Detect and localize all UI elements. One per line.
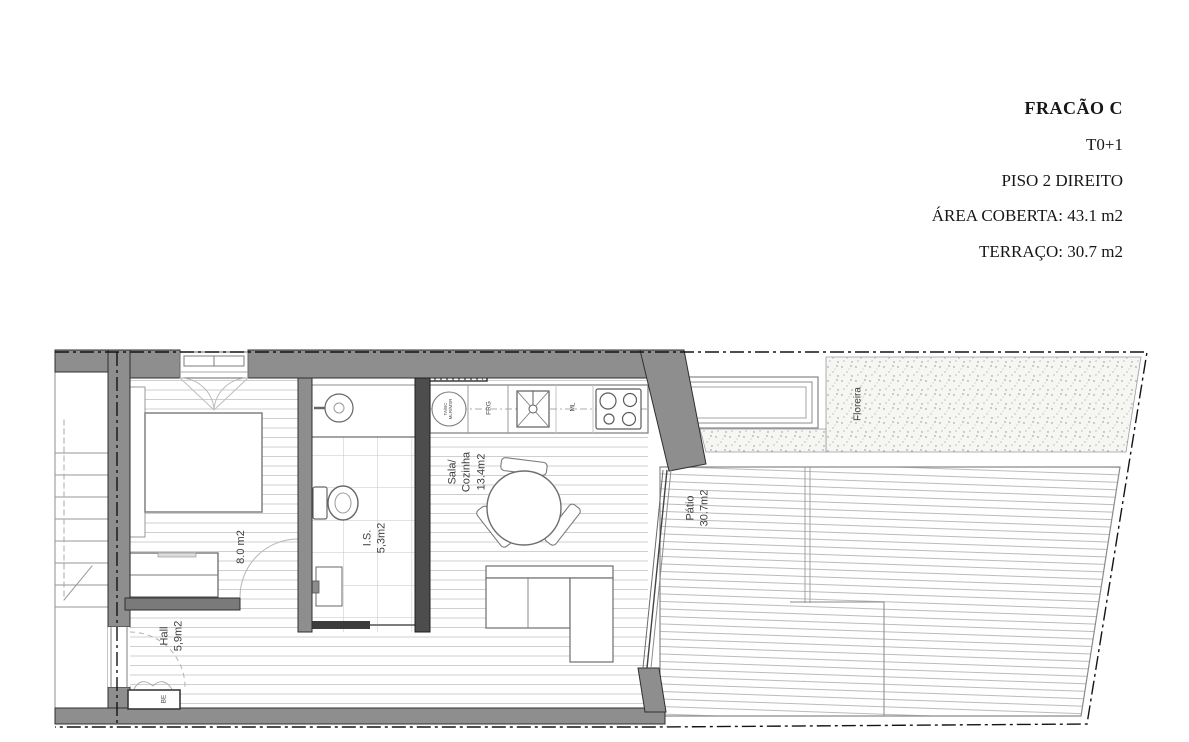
bathroom-name: I.S. <box>361 523 375 554</box>
shower-fixture-icon <box>311 567 342 606</box>
floor-plan-page: FRACÃO C T0+1 PISO 2 DIREITO ÁREA COBERT… <box>0 0 1189 742</box>
patio-label: Pátio 30.7m2 <box>684 490 713 527</box>
bathroom-sliding-door <box>312 621 370 629</box>
dishwasher-label: ML <box>569 402 576 411</box>
dishwasher-label-text: ML <box>569 402 576 411</box>
hall-name: Hall <box>158 621 172 652</box>
living-kitchen-label: Sala/ Cozinha 13.4m2 <box>446 452 489 492</box>
fridge-label-text: FRG <box>485 401 492 415</box>
bed <box>145 413 262 512</box>
closet-label-text: BE <box>160 695 167 704</box>
toilet-icon <box>313 486 358 520</box>
living-kitchen-name-bottom: Cozinha <box>460 452 474 492</box>
closet-label: BE <box>160 695 167 704</box>
hall-label: Hall 5,9m2 <box>158 621 187 652</box>
bathroom <box>311 378 415 632</box>
skylight <box>678 377 818 428</box>
bathroom-area: 5,3m2 <box>375 523 389 554</box>
kitchen-sink-icon <box>517 391 549 427</box>
bedroom-area-value: 8.0 m2 <box>234 530 248 564</box>
bedroom-area-label: 8.0 m2 <box>234 530 248 564</box>
fridge-label: FRG <box>485 401 492 415</box>
hall-area: 5,9m2 <box>172 621 186 652</box>
patio-area: 30.7m2 <box>698 490 712 527</box>
living-kitchen-name-top: Sala/ <box>446 452 460 492</box>
bathroom-label: I.S. 5,3m2 <box>361 523 390 554</box>
stairwell <box>55 350 108 708</box>
cooktop-icon <box>596 389 641 429</box>
patio-area <box>660 467 1120 716</box>
living-kitchen-area: 13.4m2 <box>474 452 488 492</box>
washer-label: TA/BC MLR/MSR <box>444 399 454 420</box>
planter-label: Floreira <box>852 387 865 421</box>
planter-name: Floreira <box>852 387 865 421</box>
patio-name: Pátio <box>684 490 698 527</box>
washer-label-line2: MLR/MSR <box>449 399 454 420</box>
dresser <box>130 553 218 597</box>
